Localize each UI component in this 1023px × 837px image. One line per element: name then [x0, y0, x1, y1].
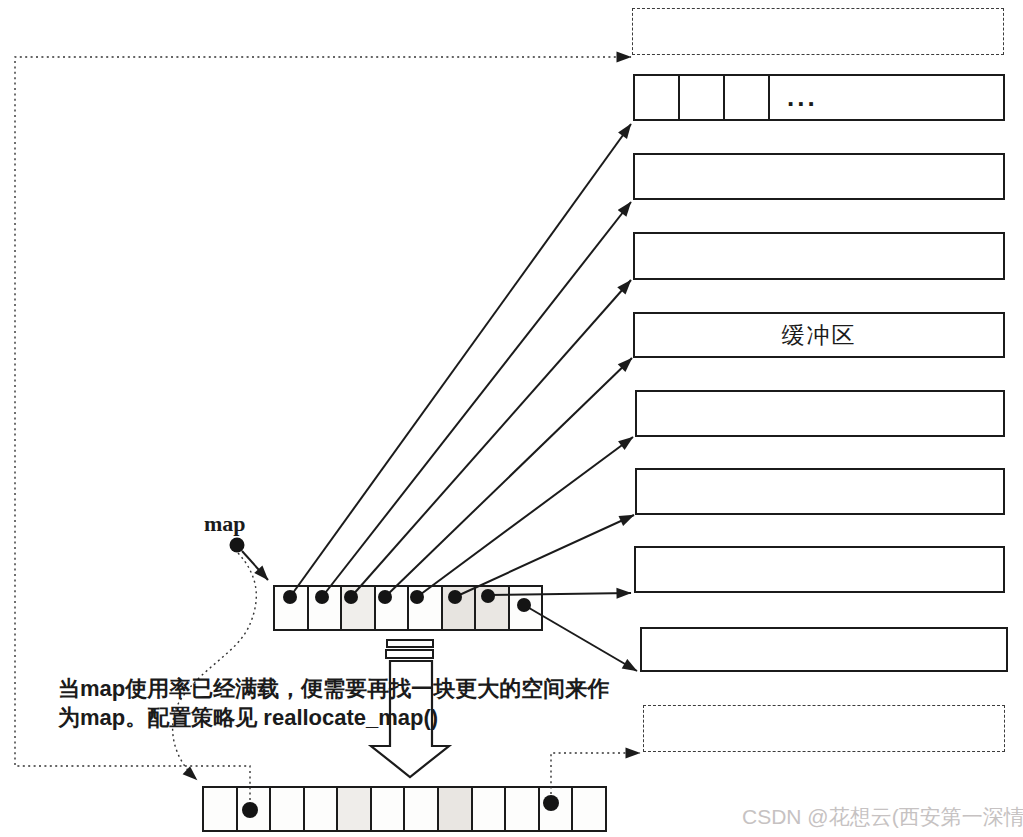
- buffer-2: [633, 153, 1005, 200]
- map-array-cell: [376, 587, 410, 629]
- buffer-label: 缓冲区: [635, 314, 1003, 356]
- new-map-array-cell: [372, 788, 406, 830]
- buffer-1-cell: [635, 76, 680, 119]
- map-array-cell: [342, 587, 376, 629]
- map-array: [273, 585, 543, 631]
- buffer-7: [634, 546, 1005, 593]
- buffer-4-labeled: 缓冲区: [633, 312, 1005, 358]
- map-array-cell: [309, 587, 343, 629]
- new-map-array-cell: [506, 788, 540, 830]
- new-map-array-cell: [540, 788, 574, 830]
- buffer-6: [635, 468, 1005, 515]
- buffer-5: [635, 390, 1005, 437]
- new-map-array-cell: [238, 788, 272, 830]
- buffer-1-cells: [635, 76, 770, 119]
- new-map-array-cell: [338, 788, 372, 830]
- new-map-array-cell: [439, 788, 473, 830]
- map-array-cell: [275, 587, 309, 629]
- new-map-array-cell: [573, 788, 605, 830]
- buffer-1-cell: [725, 76, 770, 119]
- new-map-array-cell: [473, 788, 507, 830]
- buffer-8: [640, 627, 1008, 672]
- buffer-1-segmented: ...: [633, 74, 1005, 121]
- map-array-cell: [409, 587, 443, 629]
- new-map-array-cell: [271, 788, 305, 830]
- buffer-1-ellipsis: ...: [787, 76, 818, 119]
- buffer-3: [633, 232, 1005, 280]
- boxes-layer: ... 缓冲区: [0, 0, 1023, 837]
- new-map-array-cell: [204, 788, 238, 830]
- buffer-1-cell: [680, 76, 725, 119]
- map-array-cell: [476, 587, 510, 629]
- map-array-cell: [443, 587, 477, 629]
- new-map-array-cell: [305, 788, 339, 830]
- new-map-array-cell: [405, 788, 439, 830]
- new-map-array: [202, 786, 607, 832]
- map-array-cell: [510, 587, 542, 629]
- dashed-buffer-top: [632, 8, 1004, 55]
- dashed-buffer-bottom: [643, 705, 1005, 752]
